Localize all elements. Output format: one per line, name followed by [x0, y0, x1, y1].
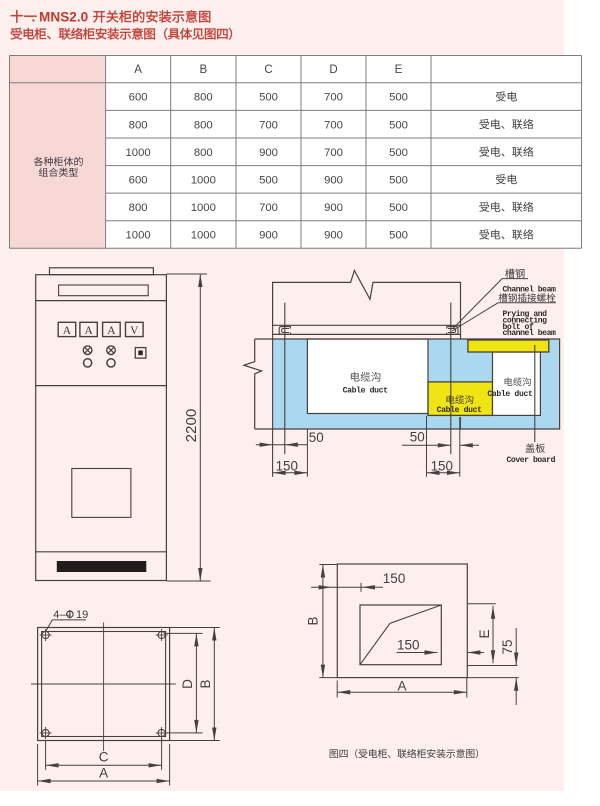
svg-text:D: D	[329, 64, 337, 76]
svg-text:50: 50	[309, 430, 324, 445]
svg-text:800: 800	[194, 119, 213, 131]
svg-text:500: 500	[389, 174, 408, 186]
svg-text:500: 500	[389, 119, 408, 131]
svg-text:900: 900	[324, 230, 343, 242]
svg-text:B: B	[198, 679, 213, 688]
svg-text:500: 500	[389, 230, 408, 242]
svg-text:channel beam: channel beam	[503, 329, 556, 338]
svg-text:900: 900	[259, 230, 278, 242]
svg-text:900: 900	[324, 174, 343, 186]
svg-text:500: 500	[389, 92, 408, 104]
svg-text:A: A	[63, 325, 72, 337]
svg-text:. MNS2.0: . MNS2.0	[32, 10, 89, 25]
svg-text:V: V	[130, 325, 139, 337]
svg-text:Cable duct: Cable duct	[487, 390, 533, 399]
svg-text:150: 150	[383, 571, 406, 586]
svg-text:E: E	[477, 629, 492, 638]
svg-text:Cable duct: Cable duct	[437, 406, 483, 415]
svg-text:900: 900	[324, 202, 343, 214]
svg-text:75: 75	[500, 639, 515, 654]
svg-text:800: 800	[194, 147, 213, 159]
svg-text:A: A	[134, 64, 142, 76]
svg-text:500: 500	[389, 202, 408, 214]
svg-text:A: A	[397, 679, 406, 694]
svg-text:D: D	[180, 679, 195, 689]
svg-text:800: 800	[129, 119, 148, 131]
svg-text:700: 700	[259, 119, 278, 131]
svg-text:1000: 1000	[126, 147, 151, 159]
svg-text:700: 700	[324, 92, 343, 104]
svg-text:Cover board: Cover board	[507, 456, 556, 465]
svg-text:900: 900	[259, 147, 278, 159]
svg-text:Cable duct: Cable duct	[343, 387, 389, 396]
svg-text:600: 600	[129, 174, 148, 186]
svg-text:150: 150	[397, 638, 420, 653]
svg-text:500: 500	[389, 147, 408, 159]
svg-text:E: E	[395, 64, 403, 76]
svg-text:500: 500	[259, 92, 278, 104]
svg-text:1000: 1000	[126, 230, 151, 242]
svg-text:A: A	[84, 325, 93, 337]
svg-text:A: A	[107, 325, 116, 337]
svg-text:800: 800	[129, 202, 148, 214]
svg-text:700: 700	[324, 119, 343, 131]
svg-text:C: C	[264, 64, 272, 76]
svg-text:150: 150	[276, 458, 298, 473]
svg-text:1000: 1000	[191, 230, 216, 242]
svg-text:B: B	[199, 64, 207, 76]
svg-text:700: 700	[259, 202, 278, 214]
svg-text:B: B	[305, 616, 320, 625]
svg-text:600: 600	[129, 92, 148, 104]
svg-text:1000: 1000	[191, 202, 216, 214]
svg-text:2200: 2200	[183, 409, 200, 443]
svg-text:500: 500	[259, 174, 278, 186]
svg-text:150: 150	[431, 458, 453, 473]
svg-text:50: 50	[410, 430, 425, 445]
svg-text:C: C	[99, 750, 109, 765]
svg-text:800: 800	[194, 92, 213, 104]
svg-text:1000: 1000	[191, 174, 216, 186]
svg-text:Channel beam: Channel beam	[503, 285, 556, 294]
svg-text:700: 700	[324, 147, 343, 159]
svg-text:A: A	[99, 766, 108, 781]
